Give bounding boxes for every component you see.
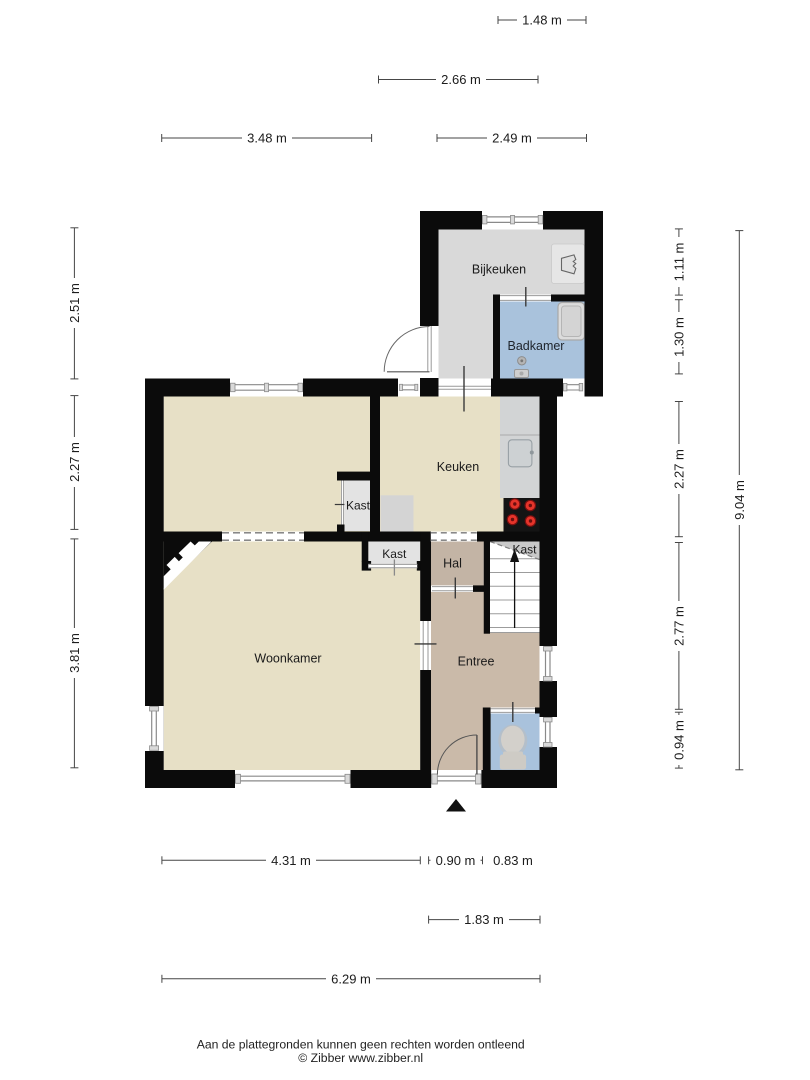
svg-text:3.48 m: 3.48 m (247, 131, 287, 146)
svg-text:3.81 m: 3.81 m (67, 633, 82, 673)
svg-text:Kast: Kast (512, 543, 537, 557)
svg-text:1.48 m: 1.48 m (522, 13, 562, 28)
svg-text:4.31 m: 4.31 m (271, 853, 311, 868)
svg-text:0.94 m: 0.94 m (671, 720, 686, 760)
svg-text:2.66 m: 2.66 m (441, 72, 481, 87)
svg-text:1.30 m: 1.30 m (671, 317, 686, 357)
svg-text:Aan de plattegronden kunnen ge: Aan de plattegronden kunnen geen rechten… (197, 1038, 525, 1052)
svg-text:2.51 m: 2.51 m (67, 283, 82, 323)
svg-text:2.27 m: 2.27 m (671, 449, 686, 489)
svg-text:Keuken: Keuken (437, 460, 479, 474)
svg-text:Entree: Entree (458, 655, 495, 669)
svg-text:Hal: Hal (443, 557, 462, 571)
svg-text:2.49 m: 2.49 m (492, 131, 532, 146)
svg-text:0.83 m: 0.83 m (493, 853, 533, 868)
svg-text:Bijkeuken: Bijkeuken (472, 263, 526, 277)
svg-text:2.77 m: 2.77 m (671, 606, 686, 646)
svg-text:2.27 m: 2.27 m (67, 442, 82, 482)
svg-text:Woonkamer: Woonkamer (254, 652, 321, 666)
svg-text:Badkamer: Badkamer (508, 339, 565, 353)
svg-text:6.29 m: 6.29 m (331, 971, 371, 986)
svg-text:1.83 m: 1.83 m (464, 912, 504, 927)
svg-text:Kast: Kast (346, 499, 371, 513)
svg-text:1.11 m: 1.11 m (671, 243, 686, 282)
svg-text:© Zibber www.zibber.nl: © Zibber www.zibber.nl (298, 1051, 423, 1065)
svg-text:Kast: Kast (382, 547, 407, 561)
svg-text:9.04 m: 9.04 m (732, 480, 747, 520)
svg-text:0.90 m: 0.90 m (436, 853, 476, 868)
